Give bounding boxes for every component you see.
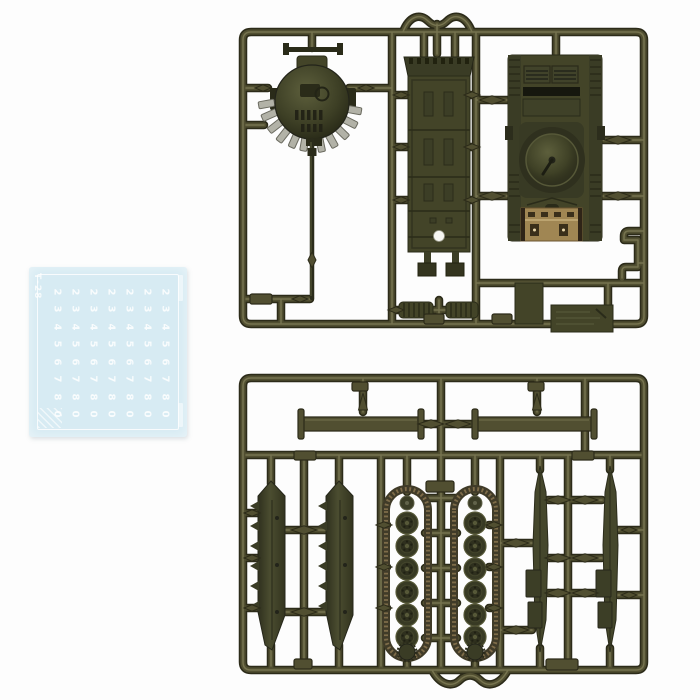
turret-dome [275,65,349,139]
lower-hull-part [404,57,474,276]
flat-plate-part [515,283,543,324]
bottom-sprue [243,378,644,684]
name-plate-part [551,305,613,332]
side-skirt-part-1 [250,481,285,650]
product-photo-canvas: Т-28 22222223333333444444455555556666666… [0,0,700,700]
top-sprue [243,17,644,332]
side-skirt-part-2 [318,481,353,650]
turret-part [258,43,362,153]
hull-side-part-1 [526,466,548,652]
muffler-part [446,302,478,318]
upper-hull-part [505,55,605,241]
hull-rear-deck [521,208,582,241]
sprues-illustration [0,0,700,700]
gun-barrel-part [308,140,317,298]
